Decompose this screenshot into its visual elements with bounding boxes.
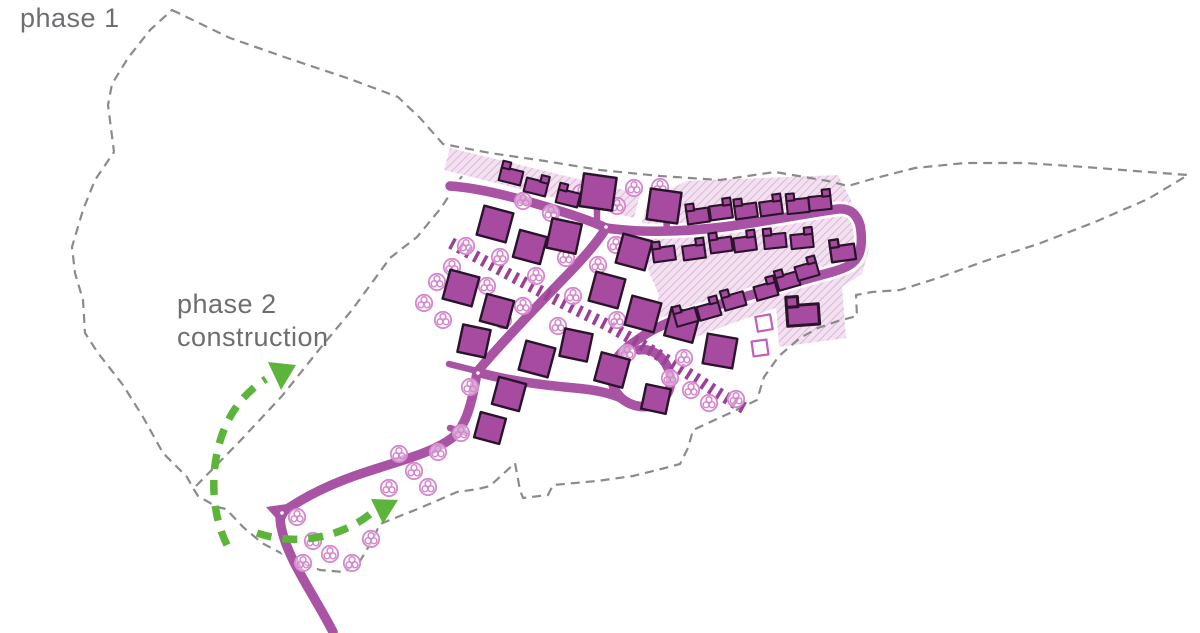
tree-marker bbox=[701, 395, 717, 411]
phase1-building bbox=[625, 296, 662, 333]
tree-marker bbox=[430, 444, 446, 460]
phase1-building bbox=[579, 173, 616, 210]
tree-marker bbox=[515, 298, 531, 314]
phase1-building bbox=[589, 272, 626, 309]
tree-marker bbox=[406, 463, 422, 479]
phase1-building bbox=[474, 412, 506, 444]
tree-marker bbox=[662, 370, 678, 386]
tree-marker bbox=[420, 479, 436, 495]
tree-marker bbox=[590, 257, 606, 273]
tree-marker bbox=[609, 312, 625, 328]
phase1-building bbox=[641, 384, 671, 414]
tree-marker bbox=[416, 295, 432, 311]
phase1-building bbox=[443, 270, 480, 307]
tree-marker bbox=[565, 288, 581, 304]
tree-marker bbox=[322, 546, 338, 562]
phase2-label-line1: phase 2 bbox=[177, 288, 329, 321]
terraced-house bbox=[499, 161, 525, 186]
phase1-building bbox=[546, 218, 582, 254]
tree-marker bbox=[515, 193, 531, 209]
vacant-plots-layer bbox=[752, 314, 773, 356]
tree-marker bbox=[728, 391, 744, 407]
tree-marker bbox=[344, 555, 360, 571]
phase1-building bbox=[559, 328, 592, 361]
phase2-arrowhead-west bbox=[268, 362, 296, 390]
phase2-label-line2: construction bbox=[177, 321, 329, 354]
road-node bbox=[496, 367, 500, 371]
phase1-building bbox=[457, 324, 490, 357]
phase2-label: phase 2 construction bbox=[177, 288, 329, 354]
tree-marker bbox=[462, 379, 478, 395]
tree-marker bbox=[289, 509, 305, 525]
tree-marker bbox=[435, 312, 451, 328]
phase1-building bbox=[513, 230, 547, 264]
site-plan: phase 1 phase 2 construction bbox=[0, 0, 1200, 633]
tree-marker bbox=[676, 350, 692, 366]
vacant-plot bbox=[755, 314, 772, 331]
phase1-building bbox=[646, 188, 681, 223]
tree-marker bbox=[492, 249, 508, 265]
tree-marker bbox=[391, 446, 407, 462]
tree-marker bbox=[429, 274, 445, 290]
tree-marker bbox=[381, 480, 397, 496]
tree-marker bbox=[528, 268, 544, 284]
phase2-arrowhead-south bbox=[371, 499, 398, 524]
phase1-building bbox=[477, 206, 514, 243]
tree-marker bbox=[683, 382, 699, 398]
phase2-arrow-west bbox=[214, 379, 266, 545]
tree-marker bbox=[363, 531, 379, 547]
phase1-building bbox=[703, 334, 738, 369]
tree-marker bbox=[626, 180, 642, 196]
phase1-label: phase 1 bbox=[20, 2, 120, 35]
road-node bbox=[604, 225, 608, 229]
phase1-building bbox=[594, 352, 630, 388]
tree-marker bbox=[295, 555, 311, 571]
tree-marker bbox=[479, 278, 495, 294]
phase1-building bbox=[616, 234, 653, 271]
road-node bbox=[476, 371, 480, 375]
tree-marker bbox=[453, 425, 469, 441]
road-node bbox=[280, 511, 284, 515]
tree-marker bbox=[458, 238, 474, 254]
phase1-building bbox=[480, 294, 514, 328]
phase1-building bbox=[519, 341, 556, 378]
vacant-plot bbox=[752, 340, 769, 357]
phase1-building bbox=[492, 377, 526, 411]
